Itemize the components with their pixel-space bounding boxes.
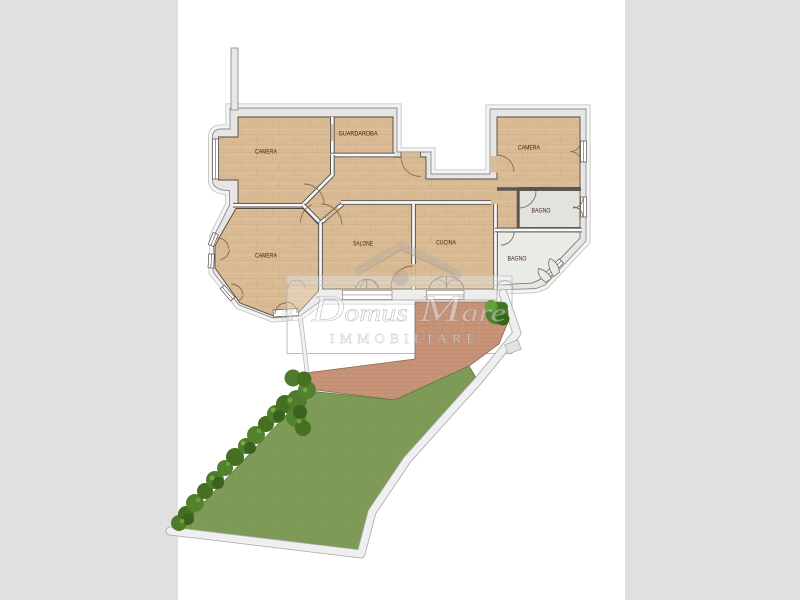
svg-text:BAGNO: BAGNO — [532, 208, 551, 215]
svg-text:BAGNO: BAGNO — [508, 256, 527, 263]
svg-text:CAMERA: CAMERA — [255, 149, 277, 156]
svg-text:n: n — [281, 299, 294, 326]
svg-text:CAMERA: CAMERA — [255, 253, 277, 260]
svg-text:SALONE: SALONE — [353, 241, 373, 248]
svg-text:IMMOBILIARE: IMMOBILIARE — [330, 332, 480, 347]
svg-text:CAMERA: CAMERA — [518, 145, 540, 152]
svg-text:CUCINA: CUCINA — [436, 240, 456, 247]
svg-text:GUARDAROBA: GUARDAROBA — [339, 131, 379, 138]
